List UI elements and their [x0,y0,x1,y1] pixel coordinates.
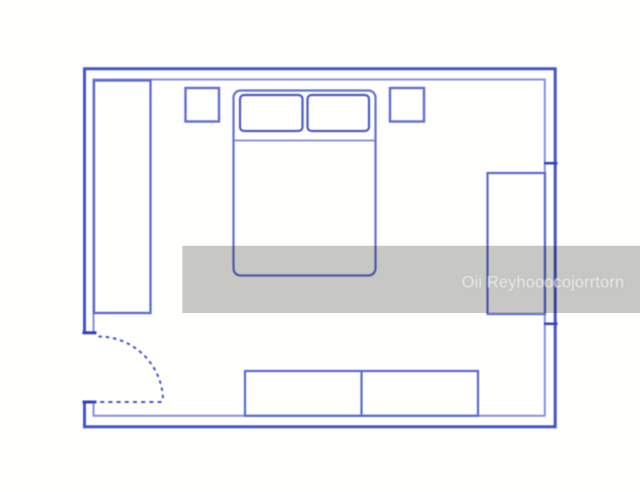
svg-text:Oii Reyhooocojorrtorn: Oii Reyhooocojorrtorn [462,274,625,292]
